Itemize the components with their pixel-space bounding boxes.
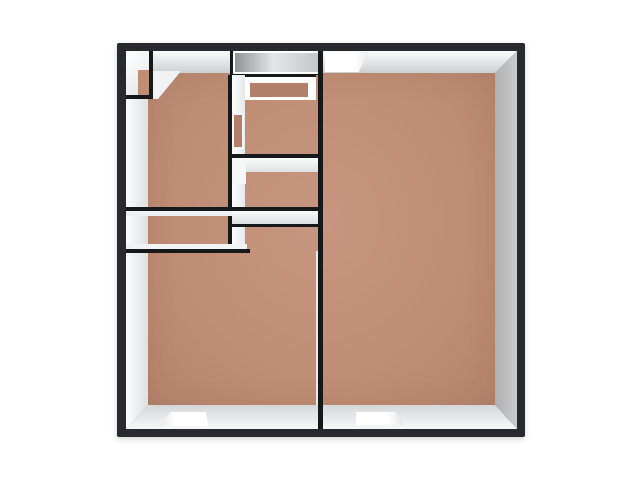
upper-closet-niche-floor bbox=[250, 83, 308, 97]
corner-closet-floor bbox=[138, 70, 149, 95]
partition-wall-face-east bbox=[232, 211, 318, 224]
corner-closet-east-wall bbox=[149, 51, 153, 99]
lower-closet-header-jamb bbox=[232, 158, 246, 184]
lower-closet-north-wall bbox=[228, 154, 323, 158]
partition-wall bbox=[126, 207, 323, 211]
west-wall-inner-face bbox=[126, 51, 148, 429]
upper-closet-niche-frame bbox=[233, 74, 316, 100]
east-wall-inner-face bbox=[495, 51, 517, 429]
central-dividing-wall bbox=[318, 51, 323, 429]
door-opening-in-hall-wall bbox=[232, 113, 244, 149]
partition-wall-south-edge bbox=[232, 224, 323, 227]
built-in-cabinet bbox=[233, 51, 322, 74]
floorplan-render bbox=[0, 0, 640, 480]
corner-closet-south-wall bbox=[126, 95, 153, 99]
partition-wall-face-west bbox=[126, 211, 232, 216]
apartment-interior bbox=[126, 51, 517, 429]
exterior-wall-frame bbox=[117, 43, 525, 437]
bedroom-north-wall bbox=[126, 249, 250, 253]
